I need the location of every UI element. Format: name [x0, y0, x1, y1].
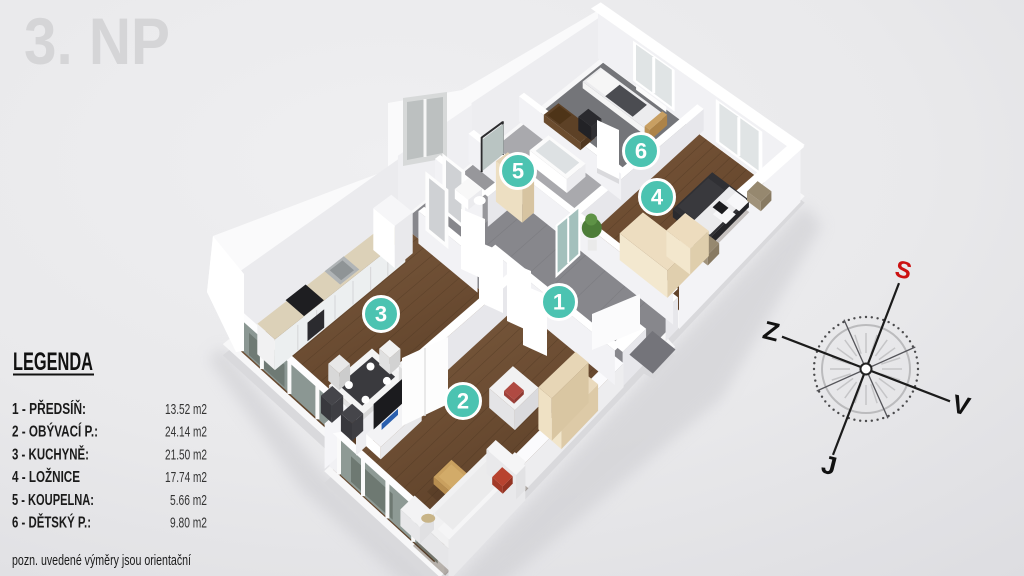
- svg-text:24.14 m2: 24.14 m2: [165, 424, 207, 441]
- svg-text:5: 5: [512, 159, 524, 184]
- svg-text:4: 4: [651, 185, 664, 210]
- svg-text:5.66 m2: 5.66 m2: [170, 492, 207, 509]
- svg-text:3. NP: 3. NP: [24, 4, 170, 78]
- svg-text:2 - OBÝVACÍ P.:: 2 - OBÝVACÍ P.:: [12, 423, 98, 441]
- svg-text:6 - DĚTSKÝ P.:: 6 - DĚTSKÝ P.:: [12, 514, 91, 532]
- svg-text:pozn. uvedené výměry jsou orie: pozn. uvedené výměry jsou orientační: [12, 553, 191, 569]
- svg-text:13.52 m2: 13.52 m2: [165, 401, 207, 418]
- svg-text:21.50 m2: 21.50 m2: [165, 446, 207, 463]
- svg-text:1 - PŘEDSÍŇ:: 1 - PŘEDSÍŇ:: [12, 400, 86, 418]
- svg-text:LEGENDA: LEGENDA: [13, 348, 93, 376]
- svg-text:1: 1: [553, 290, 565, 315]
- svg-text:3: 3: [375, 302, 387, 327]
- svg-text:17.74 m2: 17.74 m2: [165, 469, 207, 486]
- svg-text:6: 6: [635, 139, 647, 164]
- svg-text:4 - LOŽNICE: 4 - LOŽNICE: [12, 468, 80, 486]
- svg-text:2: 2: [457, 389, 469, 414]
- svg-text:5 - KOUPELNA:: 5 - KOUPELNA:: [12, 492, 94, 509]
- svg-text:3 - KUCHYNĚ:: 3 - KUCHYNĚ:: [12, 445, 89, 463]
- svg-text:9.80 m2: 9.80 m2: [170, 515, 207, 532]
